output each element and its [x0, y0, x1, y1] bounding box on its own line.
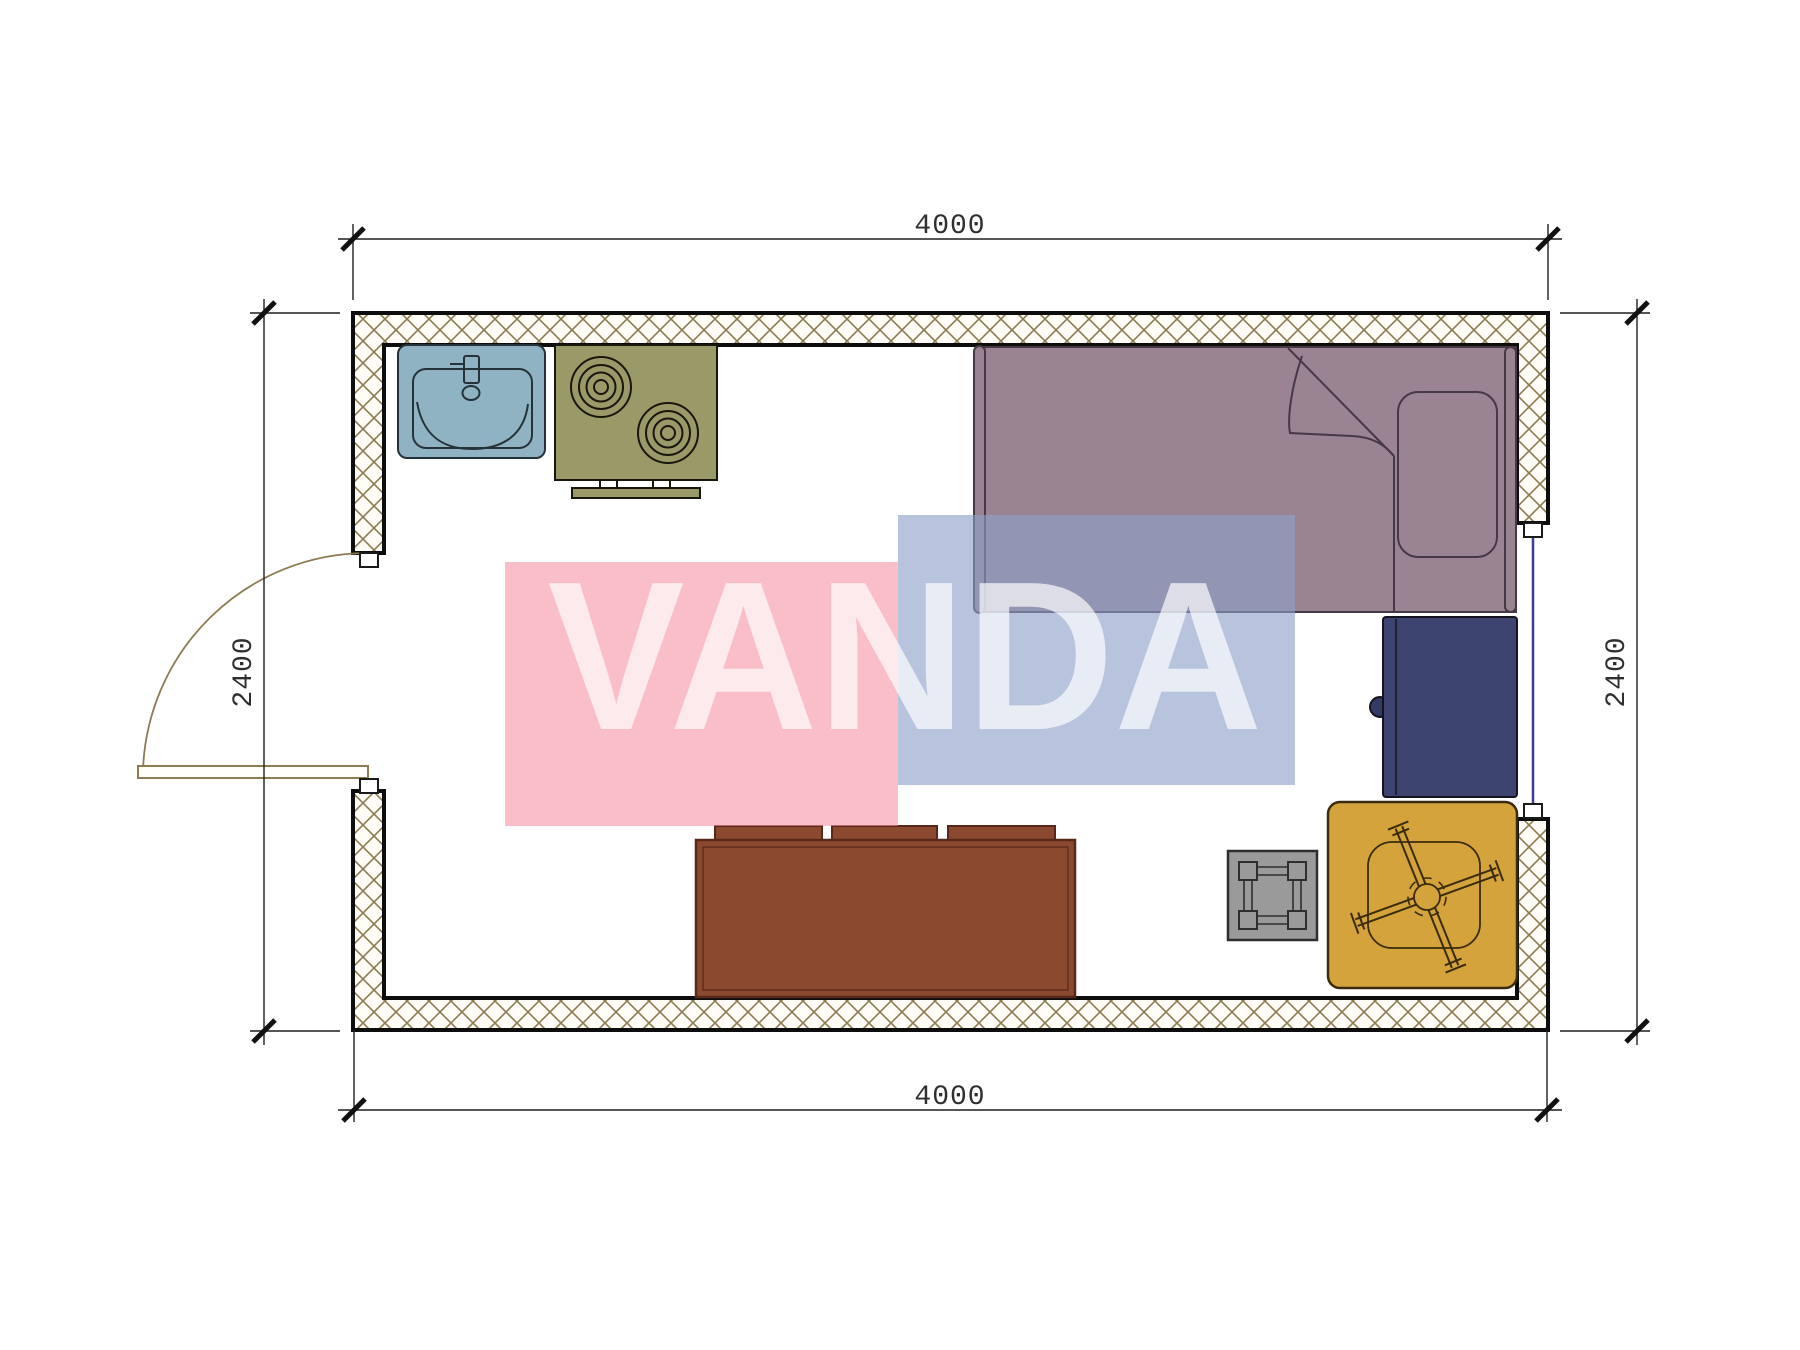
chair-hub	[1414, 884, 1440, 910]
table	[696, 826, 1075, 997]
door-opening	[348, 553, 388, 791]
stool-seat	[1228, 851, 1317, 940]
dim-label-right: 2400	[1602, 636, 1633, 707]
table-seat-tab	[948, 826, 1055, 840]
cooktop-stove	[555, 345, 717, 498]
watermark: VANDA	[505, 515, 1295, 826]
door-jamb	[360, 553, 378, 567]
table-seat-tab	[715, 826, 822, 840]
door-leaf	[138, 766, 368, 778]
desk-chair	[1328, 802, 1517, 988]
table-top	[696, 840, 1075, 997]
dim-label-top: 4000	[914, 211, 985, 242]
stool	[1228, 851, 1317, 940]
window-jamb	[1524, 523, 1542, 537]
sink-counter	[398, 345, 545, 458]
dim-label-bottom: 4000	[914, 1082, 985, 1113]
window-jamb	[1524, 804, 1542, 818]
table-seat-tab	[832, 826, 937, 840]
dim-label-left: 2400	[229, 636, 260, 707]
stove-panel-links	[600, 480, 670, 488]
wardrobe	[1370, 617, 1517, 797]
stove-control-bar	[572, 488, 700, 498]
wardrobe-body	[1383, 617, 1517, 797]
sink	[398, 345, 545, 458]
door-jamb	[360, 779, 378, 793]
floor-plan-drawing: 4000 4000 2400 2400 VANDA	[0, 0, 1800, 1350]
watermark-text: VANDA	[548, 537, 1263, 774]
floor-plan-canvas: 4000 4000 2400 2400 VANDA	[0, 0, 1800, 1350]
dim-lines-left	[250, 299, 340, 1045]
bed-headboard	[1505, 347, 1516, 612]
